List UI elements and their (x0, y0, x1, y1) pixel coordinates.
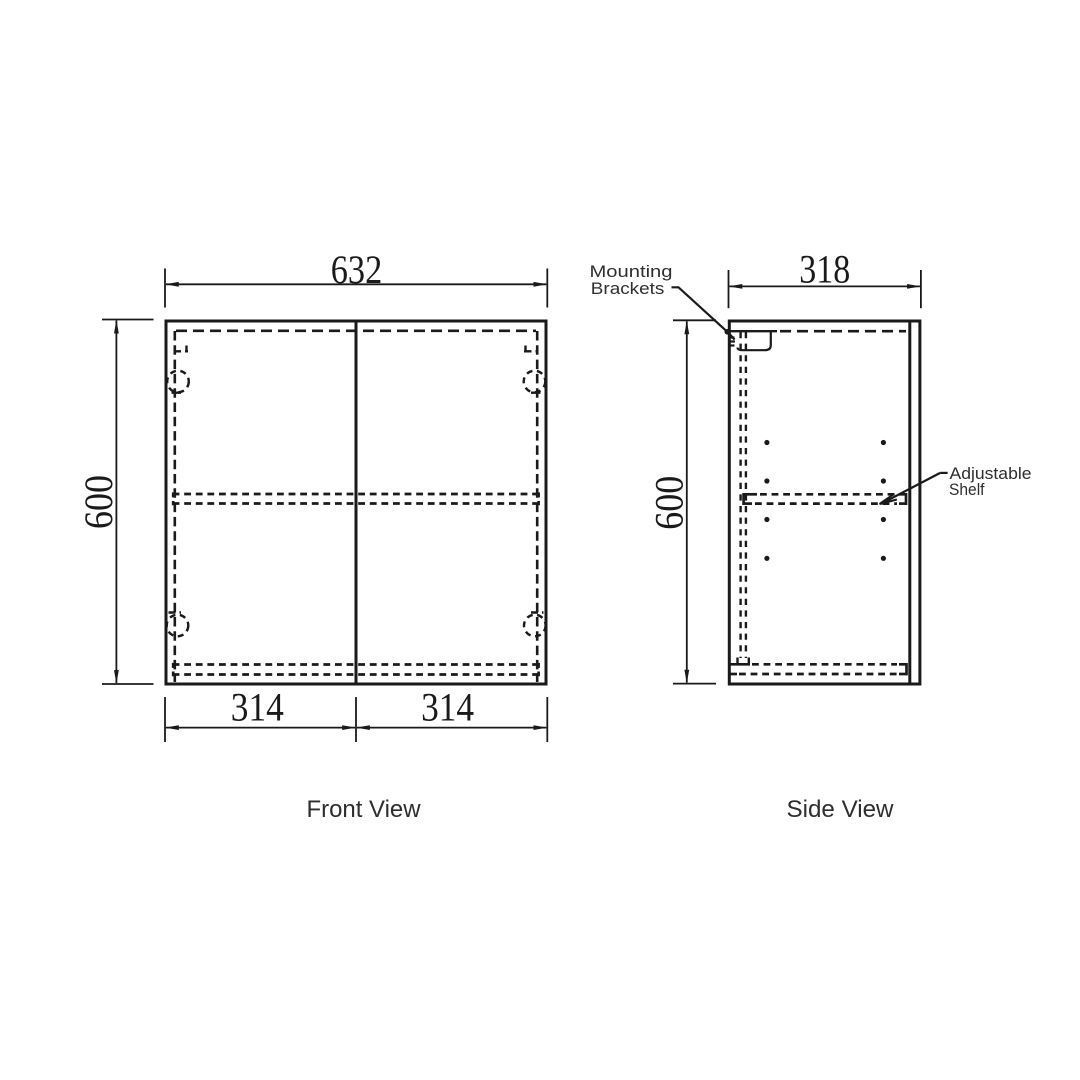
svg-text:Shelf: Shelf (949, 480, 985, 499)
svg-text:314: 314 (231, 685, 284, 730)
svg-text:600: 600 (76, 475, 121, 529)
svg-text:Brackets: Brackets (591, 279, 665, 298)
svg-text:314: 314 (421, 685, 474, 730)
svg-text:632: 632 (331, 247, 383, 292)
svg-text:Front View: Front View (307, 796, 422, 823)
svg-text:Side View: Side View (787, 796, 895, 823)
svg-text:318: 318 (799, 247, 850, 292)
svg-text:600: 600 (647, 476, 692, 530)
